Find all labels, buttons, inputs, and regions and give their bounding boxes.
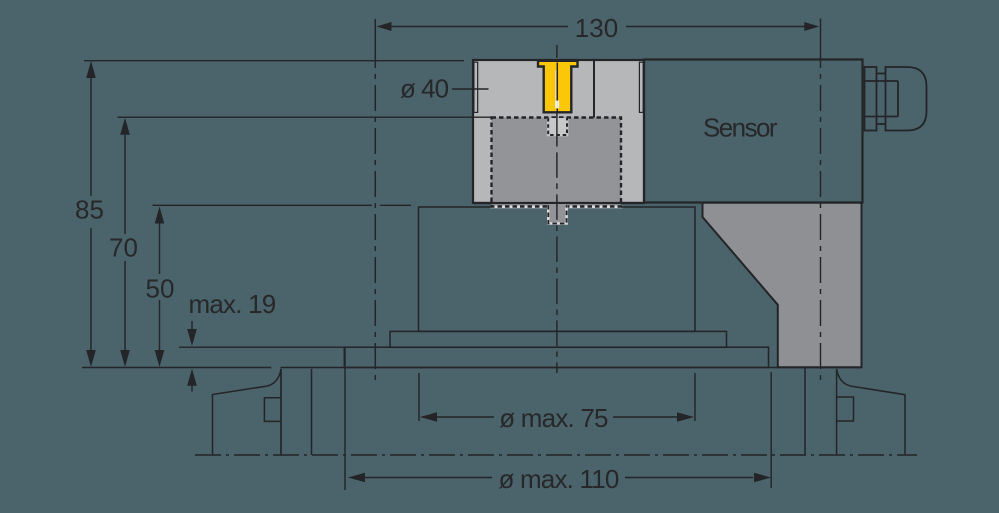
svg-text:70: 70: [109, 233, 138, 263]
svg-text:ø 40: ø 40: [400, 74, 449, 104]
svg-text:85: 85: [75, 195, 104, 225]
svg-text:50: 50: [146, 274, 175, 304]
svg-text:130: 130: [575, 13, 618, 43]
svg-text:Sensor: Sensor: [703, 113, 778, 143]
svg-text:ø max. 75: ø max. 75: [499, 403, 608, 433]
svg-text:ø max. 110: ø max. 110: [498, 464, 618, 494]
svg-text:max. 19: max. 19: [189, 289, 276, 319]
